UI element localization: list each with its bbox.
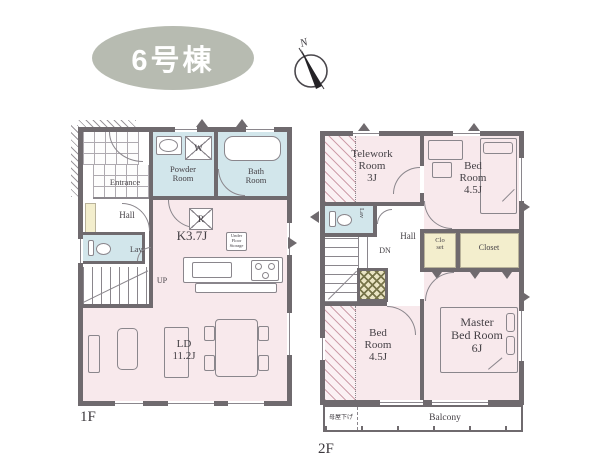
wall: [420, 229, 519, 233]
wall: [83, 304, 153, 308]
window: [78, 239, 83, 263]
vent-icon: [521, 291, 530, 303]
dining-chair: [258, 355, 269, 371]
stairs-down: [325, 235, 358, 302]
toilet-tank: [329, 211, 336, 227]
vent-icon: [468, 123, 480, 131]
wall: [78, 127, 83, 406]
window: [353, 131, 379, 136]
floor2-plan: Telework Room 3J Lav Hall DN Bed Room 4.…: [320, 131, 524, 405]
bath-room-label: Bath Room: [228, 167, 284, 185]
closet-door-mark: [470, 272, 480, 279]
vent-icon: [236, 119, 248, 127]
window: [453, 131, 480, 136]
window: [246, 127, 274, 132]
wall: [325, 302, 387, 306]
desk: [428, 140, 463, 160]
toilet-bowl: [337, 214, 352, 226]
stairwell-void-hatch: [357, 268, 388, 302]
dining-chair: [258, 326, 269, 341]
window: [168, 401, 214, 406]
lav-label: Lav.: [120, 246, 154, 255]
shoe-cabinet: [85, 203, 96, 233]
washer-label: W: [194, 143, 203, 153]
floor2-label: 2F: [318, 441, 334, 458]
wall: [420, 136, 424, 166]
wall: [320, 131, 325, 405]
dining-chair: [204, 355, 215, 371]
dn-label: DN: [374, 247, 396, 256]
balcony-label: Balcony: [385, 413, 505, 423]
powder-sink-bowl: [159, 139, 178, 152]
window: [115, 401, 143, 406]
compass-icon: N: [283, 34, 339, 94]
stove-burner: [268, 263, 275, 270]
wall: [83, 232, 145, 235]
window: [287, 313, 292, 355]
lav2-label: Lav: [358, 208, 365, 232]
window: [175, 127, 197, 132]
powder-room-label: Powder Room: [152, 165, 214, 183]
building-badge-label: 6号棟: [131, 37, 214, 79]
up-label: UP: [151, 277, 173, 286]
master-bedroom-label: Master Bed Room 6J: [438, 316, 516, 355]
counter-lip: [195, 283, 277, 293]
toilet-tank: [88, 240, 94, 256]
ground-hatch: [78, 120, 136, 127]
floor1-plan: W R Entrance Hall Lav. Powder Room Bath …: [78, 127, 292, 406]
wall: [287, 127, 292, 406]
window: [228, 401, 264, 406]
bedroom-top-label: Bed Room 4.5J: [444, 161, 502, 197]
vent-icon: [521, 201, 530, 213]
wall: [373, 206, 377, 233]
washing-machine: W: [185, 136, 212, 160]
balcony: 母屋下げ Balcony: [323, 405, 523, 432]
closet-door-mark: [502, 272, 512, 279]
telework-room-label: Telework Room 3J: [332, 149, 412, 185]
sofa: [117, 328, 138, 370]
vent-icon: [196, 119, 208, 127]
stairs-landing: [358, 235, 374, 268]
dining-chair: [204, 326, 215, 341]
floor-plan-page: 6号棟 N: [0, 0, 600, 475]
lav2-door-arc: [377, 209, 392, 224]
lowered-roof-label: 母屋下げ: [326, 415, 356, 421]
wall: [214, 132, 218, 196]
tv-board: [88, 335, 100, 373]
ground-hatch: [71, 125, 78, 197]
closet-label: Closet: [461, 244, 517, 253]
dining-table: [215, 319, 258, 377]
window: [519, 311, 524, 361]
balcony-rail-ticks: [325, 426, 521, 430]
bathtub: [224, 136, 281, 161]
floor1-label: 1F: [80, 409, 96, 426]
wall: [83, 261, 145, 264]
stove-burner: [255, 263, 262, 270]
toilet-bowl: [96, 243, 111, 255]
wall: [456, 233, 460, 268]
vent-icon: [288, 237, 297, 249]
entrance-label: Entrance: [98, 178, 152, 187]
bedroom-bottom-label: Bed Room 4.5J: [352, 328, 404, 364]
under-floor-storage-label: Under Floor Storage: [226, 233, 247, 249]
vent-icon: [310, 211, 319, 223]
vent-icon: [358, 123, 370, 131]
window: [519, 158, 524, 201]
wall: [325, 233, 377, 237]
bed-pillow: [483, 142, 513, 154]
building-badge: 6号棟: [92, 26, 254, 90]
refrigerator: R: [189, 208, 213, 230]
living-dining-label: LD 11.2J: [163, 339, 205, 363]
fridge-label: R: [198, 214, 204, 224]
hall-label: Hall: [106, 211, 148, 221]
wall: [420, 299, 424, 400]
window: [320, 338, 325, 360]
closet-small-label: Clo set: [426, 237, 454, 251]
hall2-label: Hall: [388, 232, 428, 242]
stove-burner: [262, 272, 269, 279]
entrance-step-line: [93, 197, 150, 199]
kitchen-sink: [192, 262, 232, 278]
kitchen-label: K3.7J: [162, 229, 222, 243]
